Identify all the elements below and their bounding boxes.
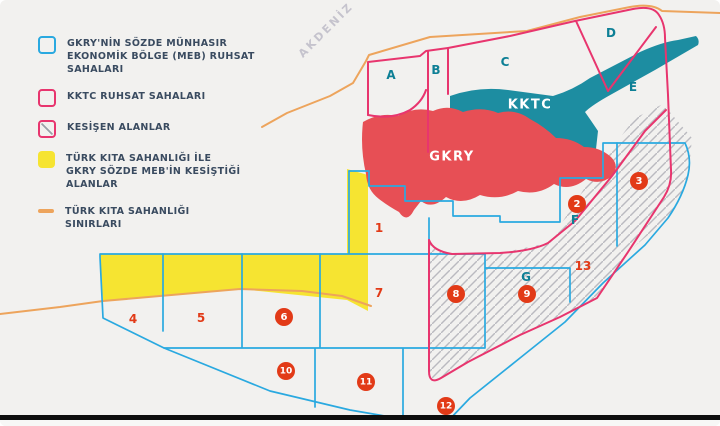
legend-swatch-yellow-box — [38, 151, 55, 168]
infographic-map-cyprus: AKDENİZ KKTCGKRY ABCDEFG 145713 23689101… — [0, 0, 720, 426]
legend-item-kktc-ruhsat: KKTC RUHSAT SAHALARI — [38, 89, 263, 107]
zone-badge-number: 6 — [281, 312, 288, 323]
zone-badge-8: 8 — [447, 285, 465, 303]
legend-swatch-orange-line — [38, 209, 54, 213]
zone-badge-11: 11 — [357, 373, 375, 391]
region-label-kktc: KKTC — [508, 98, 553, 113]
legend-item-kesisen-alanlar: KESİŞEN ALANLAR — [38, 120, 263, 138]
bottom-light-strip — [0, 420, 720, 426]
yellow-intersect-vertical-strip — [347, 169, 368, 311]
legend-label: GKRY'NİN SÖZDE MÜNHASIR EKONOMİK BÖLGE (… — [67, 36, 255, 76]
legend-label: TÜRK KITA SAHANLIĞI İLE GKRY SÖZDE MEB'İ… — [66, 151, 240, 191]
legend-item-gkry-meb: GKRY'NİN SÖZDE MÜNHASIR EKONOMİK BÖLGE (… — [38, 36, 263, 76]
zone-badge-number: 11 — [360, 378, 373, 388]
zone-letter-G: G — [521, 270, 531, 284]
zone-number-13: 13 — [575, 259, 592, 273]
legend-swatch-blue-box — [38, 36, 56, 54]
zone-badge-10: 10 — [277, 362, 295, 380]
zone-badge-number: 12 — [440, 402, 453, 412]
legend-label: KKTC RUHSAT SAHALARI — [67, 89, 205, 103]
zone-number-7: 7 — [375, 286, 383, 300]
zone-badge-6: 6 — [275, 308, 293, 326]
map-legend: GKRY'NİN SÖZDE MÜNHASIR EKONOMİK BÖLGE (… — [38, 36, 263, 231]
zone-badge-9: 9 — [518, 285, 536, 303]
zone-badge-2: 2 — [568, 195, 586, 213]
zone-letter-C: C — [501, 55, 510, 69]
region-label-gkry: GKRY — [429, 150, 474, 165]
zone-letter-A: A — [386, 68, 396, 82]
zone-letter-F: F — [571, 213, 579, 227]
legend-item-turk-kita-sinirlari: TÜRK KITA SAHANLIĞI SINIRLARI — [38, 204, 263, 231]
sea-label-akdeniz: AKDENİZ — [295, 0, 356, 60]
zone-letter-B: B — [431, 63, 440, 77]
zone-number-5: 5 — [197, 311, 205, 325]
zone-badge-number: 3 — [636, 176, 643, 187]
zone-badge-number: 9 — [524, 289, 531, 300]
legend-swatch-hatch-box — [38, 120, 56, 138]
zone-number-1: 1 — [375, 221, 383, 235]
zone-badge-12: 12 — [437, 397, 455, 415]
legend-item-turk-kita-gkry-meb: TÜRK KITA SAHANLIĞI İLE GKRY SÖZDE MEB'İ… — [38, 151, 263, 191]
zone-letter-E: E — [629, 80, 637, 94]
zone-number-4: 4 — [129, 312, 137, 326]
yellow-intersect-horizontal-strip — [100, 254, 347, 301]
zone-badge-3: 3 — [630, 172, 648, 190]
legend-swatch-pink-box — [38, 89, 56, 107]
legend-label: KESİŞEN ALANLAR — [67, 120, 171, 134]
bottom-black-bar — [0, 415, 720, 420]
zone-badge-number: 10 — [280, 367, 293, 377]
zone-badge-number: 8 — [453, 289, 460, 300]
zone-letter-D: D — [606, 26, 616, 40]
zone-badge-number: 2 — [574, 199, 581, 210]
legend-label: TÜRK KITA SAHANLIĞI SINIRLARI — [65, 204, 190, 231]
